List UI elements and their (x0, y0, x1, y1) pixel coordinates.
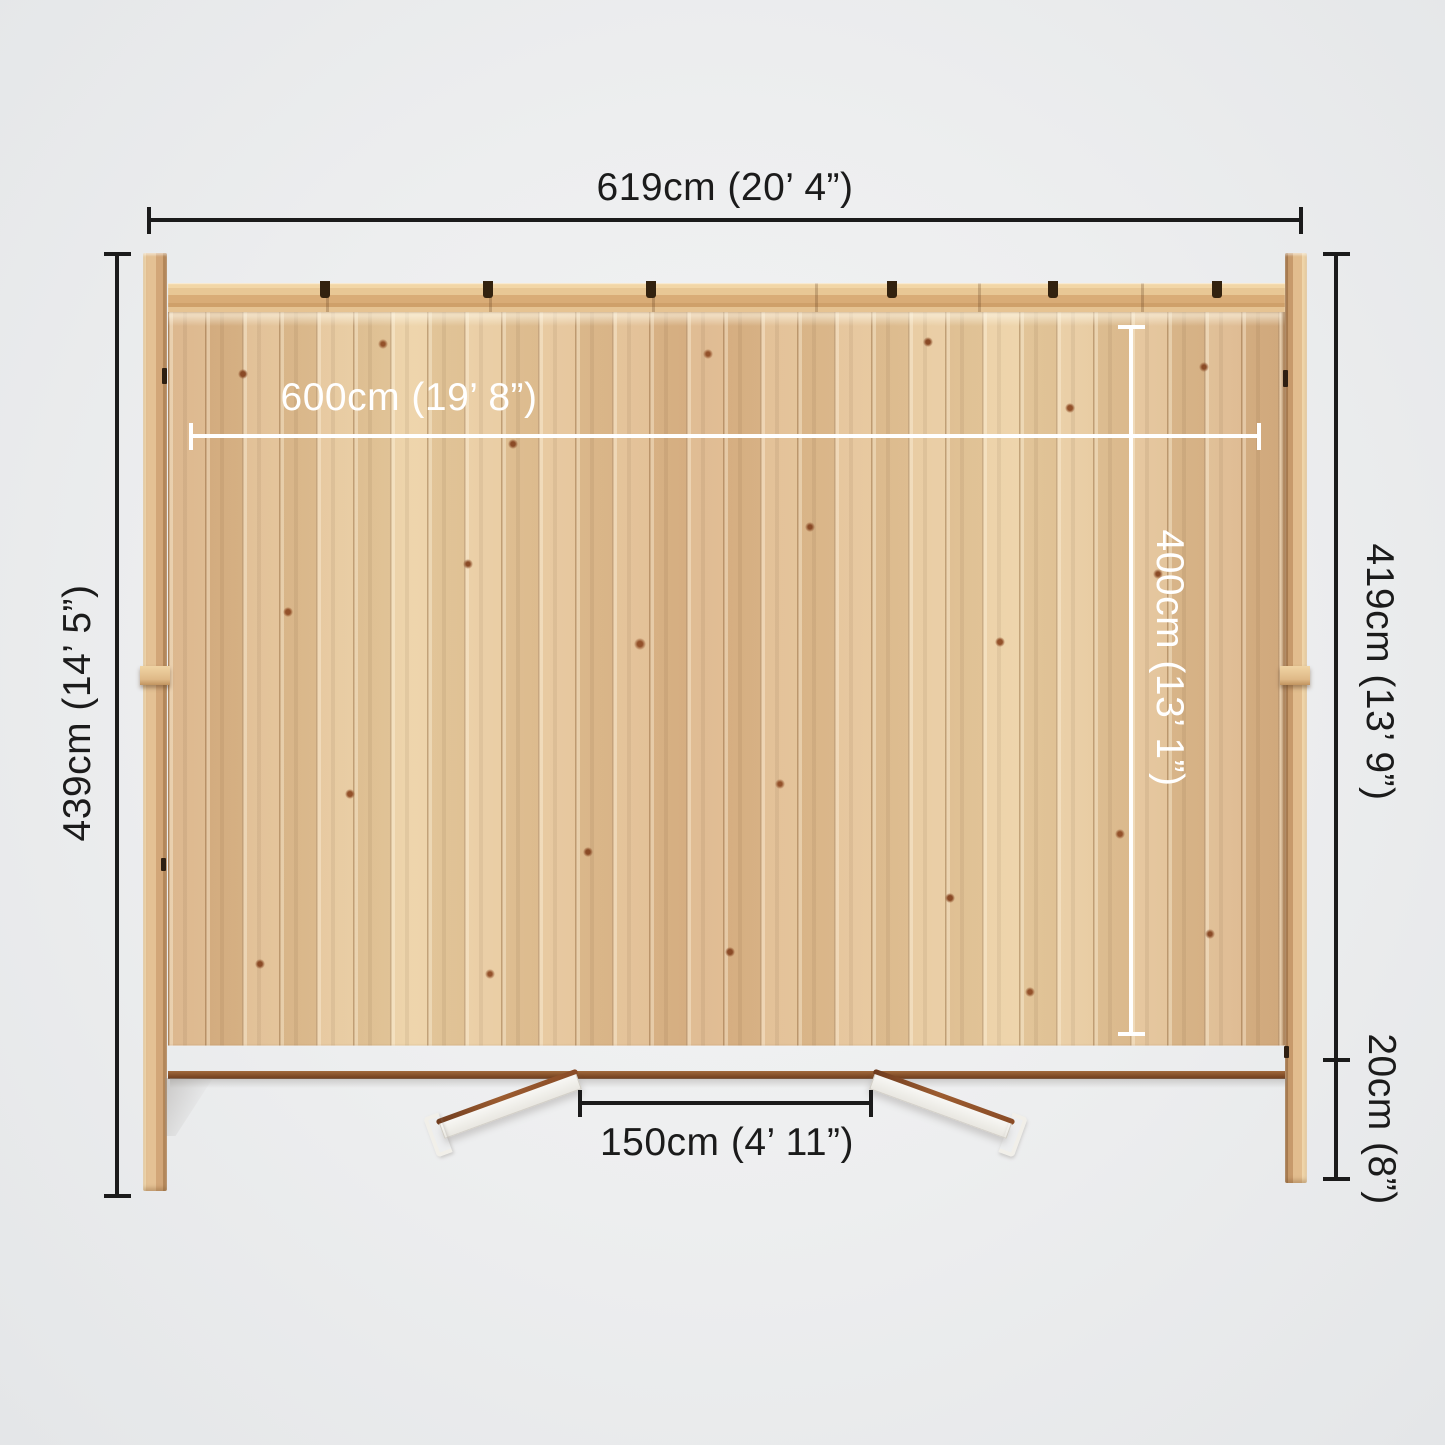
rafter-notch (320, 281, 330, 298)
roof-overhang-label: 20cm (8”) (1359, 1033, 1403, 1204)
dim-tick (578, 1090, 582, 1117)
rafter-notch (646, 281, 656, 298)
rafter-notch (887, 281, 897, 298)
overall-depth-label: 439cm (14’ 5”) (56, 585, 100, 842)
roof-board-surface (168, 312, 1285, 1046)
dim-tick (1323, 252, 1350, 256)
left-wall-joint (140, 666, 170, 685)
top-wall-beam (168, 283, 1285, 313)
building-shadow (170, 1078, 1287, 1088)
internal-width-label: 600cm (19’ 8”) (281, 376, 538, 420)
dim-tick (189, 423, 193, 450)
rafter-notch (483, 281, 493, 298)
side-depth-label: 419cm (13’ 9”) (1357, 544, 1401, 801)
dim-tick (147, 207, 151, 234)
door-opening-label: 150cm (4’ 11”) (600, 1121, 854, 1165)
roof-trim-left (143, 253, 167, 1191)
bottom-wall-beam (168, 1045, 1285, 1072)
overall-width-label: 619cm (20’ 4”) (597, 166, 854, 210)
building-corner-shadow (165, 1078, 213, 1136)
dim-tick (1118, 325, 1145, 329)
seam-notch (1283, 370, 1288, 387)
rafter-notch (1048, 281, 1058, 298)
dim-tick (1257, 423, 1261, 450)
dim-tick (1118, 1032, 1145, 1036)
dim-tick (104, 1194, 131, 1198)
dim-tick (1323, 1058, 1350, 1062)
internal-depth-label: 400cm (13’ 1”) (1147, 530, 1191, 787)
dim-tick (869, 1090, 873, 1117)
seam-notch (162, 368, 167, 384)
rafter-notch (1212, 281, 1222, 298)
roof-trim-right (1285, 253, 1307, 1183)
dim-tick (1299, 207, 1303, 234)
diagram-canvas: 619cm (20’ 4”) 439cm (14’ 5”) 419cm (13’… (0, 0, 1445, 1445)
dim-tick (1323, 1177, 1350, 1181)
seam-notch (1284, 1046, 1289, 1058)
seam-notch (161, 858, 166, 871)
right-wall-joint (1280, 666, 1310, 685)
dim-tick (104, 252, 131, 256)
